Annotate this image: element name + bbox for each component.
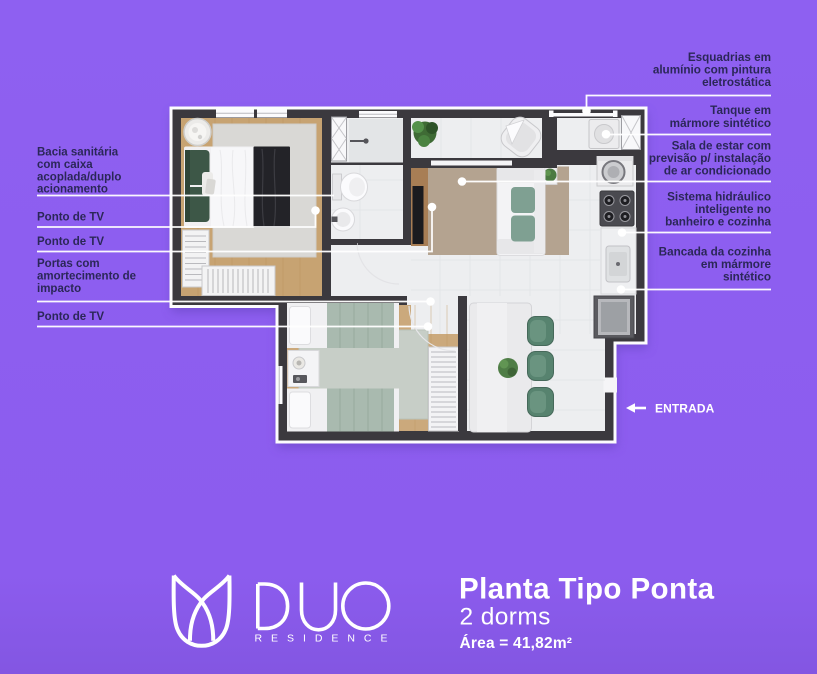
svg-text:Esquadrias em: Esquadrias em	[688, 51, 771, 64]
svg-text:RESIDENCE: RESIDENCE	[255, 633, 388, 645]
svg-text:previsão p/ instalação: previsão p/ instalação	[649, 152, 771, 165]
svg-text:alumínio com pintura: alumínio com pintura	[653, 64, 772, 77]
svg-text:Portas com: Portas com	[37, 258, 100, 270]
svg-text:em mármore: em mármore	[701, 258, 772, 271]
svg-text:amortecimento de: amortecimento de	[37, 271, 136, 283]
svg-text:Planta Tipo Ponta: Planta Tipo Ponta	[459, 573, 715, 606]
svg-text:Bacia sanitária: Bacia sanitária	[37, 147, 119, 159]
svg-text:Sistema hidráulico: Sistema hidráulico	[667, 191, 771, 204]
svg-text:de ar condicionado: de ar condicionado	[664, 165, 771, 178]
svg-text:Tanque em: Tanque em	[710, 104, 771, 117]
svg-text:Bancada da cozinha: Bancada da cozinha	[659, 246, 772, 259]
svg-text:com caixa: com caixa	[37, 159, 93, 171]
svg-text:acionamento: acionamento	[37, 183, 108, 195]
svg-text:Sala de estar com: Sala de estar com	[672, 140, 771, 153]
svg-text:eletrostática: eletrostática	[702, 76, 771, 89]
svg-text:Área = 41,82m²: Área = 41,82m²	[460, 635, 573, 652]
svg-text:mármore sintético: mármore sintético	[670, 117, 771, 130]
svg-text:sintético: sintético	[723, 271, 771, 284]
svg-text:Ponto de TV: Ponto de TV	[37, 212, 104, 224]
svg-text:2 dorms: 2 dorms	[460, 604, 551, 631]
svg-text:impacto: impacto	[37, 283, 81, 295]
svg-text:inteligente no: inteligente no	[695, 203, 771, 216]
svg-text:Ponto de TV: Ponto de TV	[37, 311, 104, 323]
svg-text:banheiro e cozinha: banheiro e cozinha	[665, 216, 771, 229]
svg-text:Ponto de TV: Ponto de TV	[37, 236, 104, 248]
svg-text:ENTRADA: ENTRADA	[655, 402, 715, 416]
svg-text:acoplada/duplo: acoplada/duplo	[37, 172, 121, 184]
